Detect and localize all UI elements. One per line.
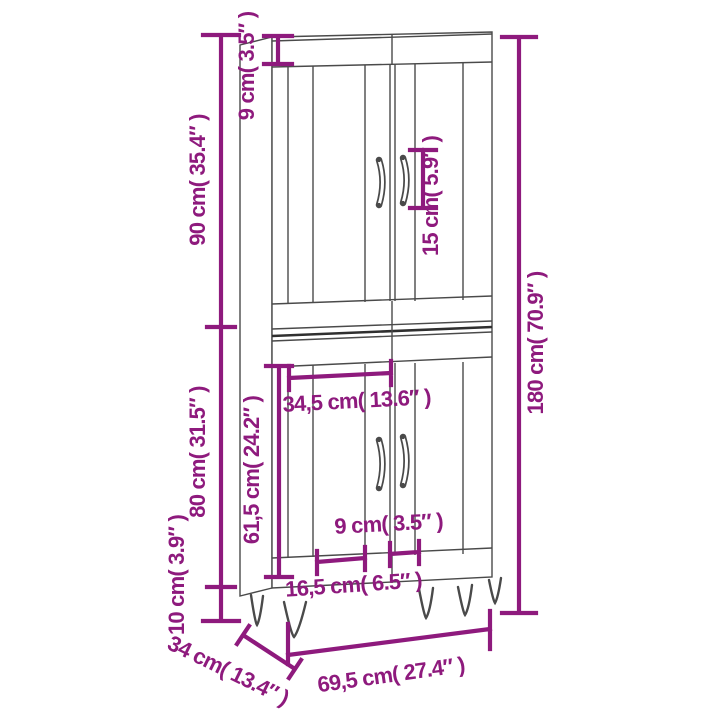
dim-lower-door-height-label: 61,5 cm( 24.2″ ) bbox=[239, 395, 264, 544]
dim-upper-unit-height-label: 90 cm( 35.4″ ) bbox=[185, 114, 210, 246]
dimension-diagram: 90 cm( 35.4″ ) 80 cm( 31.5″ ) 10 cm( 3.9… bbox=[0, 0, 717, 717]
dim-handle-length-label: 15 cm( 5.9″ ) bbox=[418, 136, 443, 256]
dim-left-stack: 90 cm( 35.4″ ) 80 cm( 31.5″ ) 10 cm( 3.9… bbox=[164, 35, 239, 635]
dim-depth: 34 cm( 13.4″ ) bbox=[164, 626, 301, 711]
leg-right bbox=[458, 585, 472, 615]
dim-total-height: 180 cm( 70.9″ ) bbox=[502, 37, 548, 613]
leg-middle bbox=[419, 588, 433, 618]
dim-depth-label: 34 cm( 13.4″ ) bbox=[164, 630, 293, 710]
dim-top-panel-label: 9 cm( 3.5″ ) bbox=[234, 11, 259, 120]
leg-far-right bbox=[489, 578, 501, 603]
cabinet-front-face bbox=[272, 32, 492, 588]
product-dimension-image: 90 cm( 35.4″ ) 80 cm( 31.5″ ) 10 cm( 3.9… bbox=[0, 0, 717, 717]
dim-leg-height-label: 10 cm( 3.9″ ) bbox=[164, 515, 189, 635]
dim-lower-unit-height-label: 80 cm( 31.5″ ) bbox=[185, 386, 210, 518]
dim-width-label: 69,5 cm( 27.4″ ) bbox=[316, 652, 467, 697]
dim-width: 69,5 cm( 27.4″ ) bbox=[288, 611, 490, 697]
dim-total-height-label: 180 cm( 70.9″ ) bbox=[523, 271, 548, 414]
leg-back-left bbox=[251, 595, 263, 625]
